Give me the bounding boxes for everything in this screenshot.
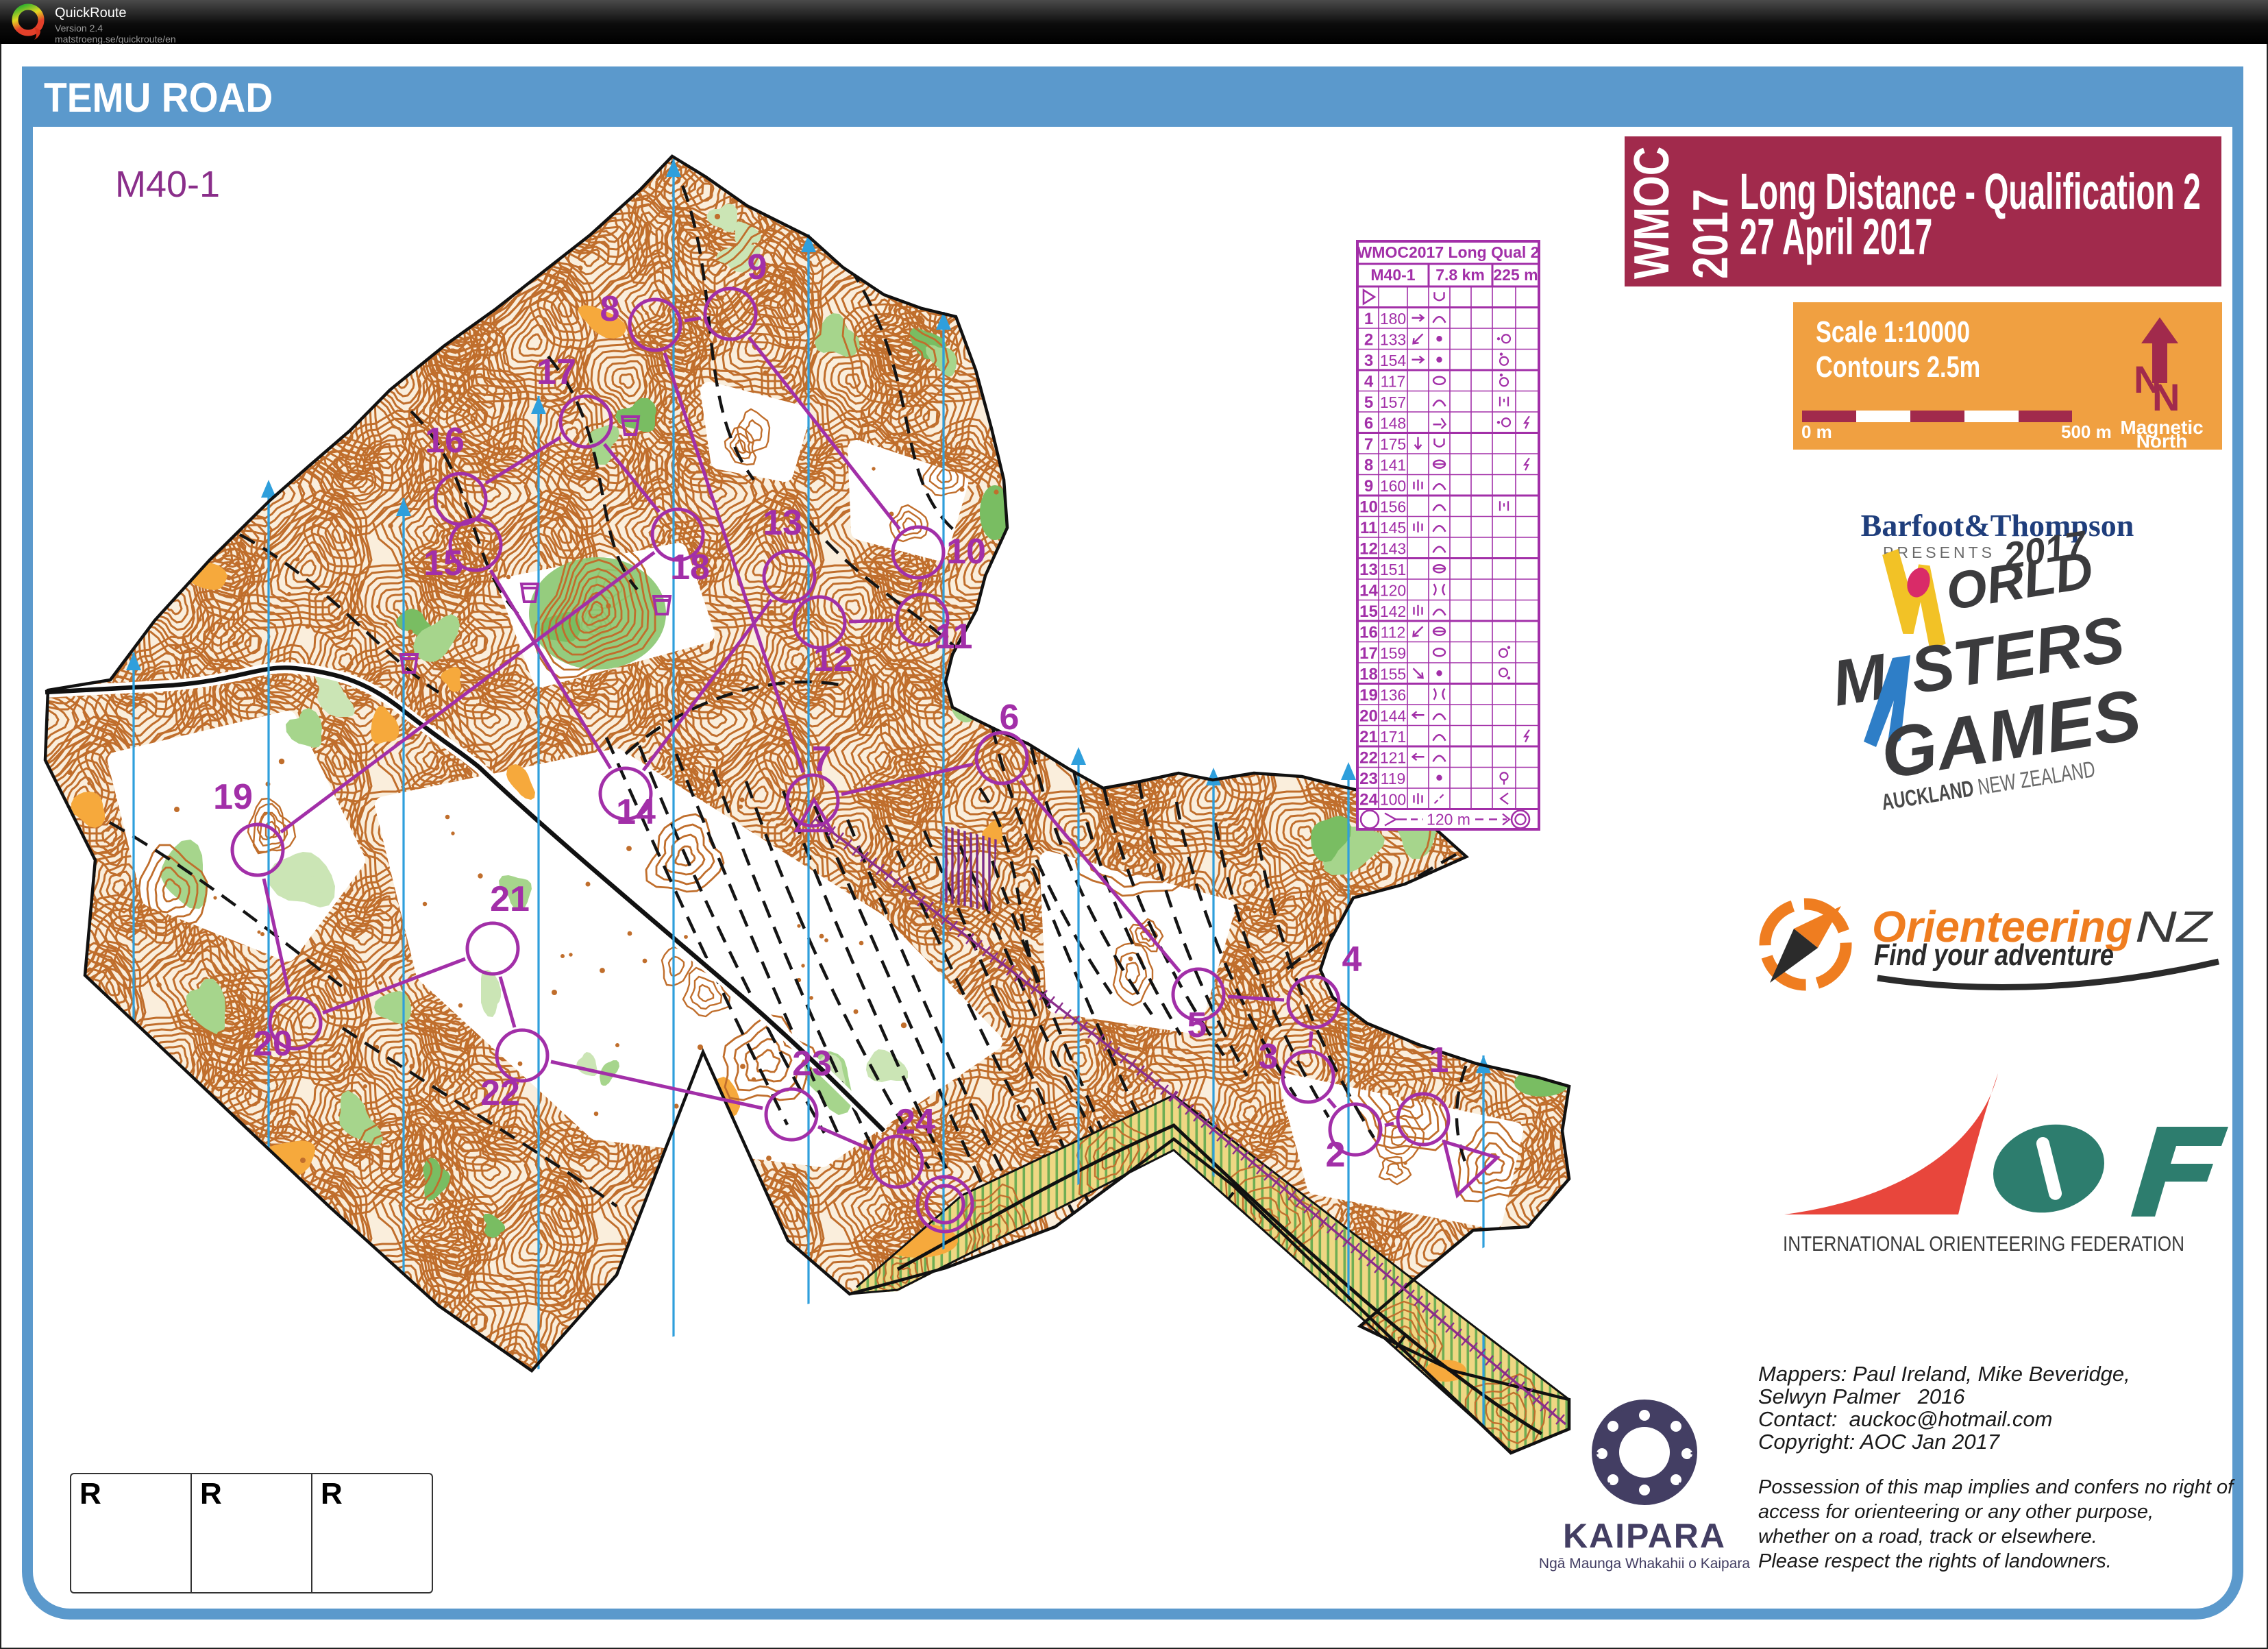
svg-text:Scale 1:10000: Scale 1:10000 [1816,315,1970,349]
svg-text:WMOC: WMOC [1625,147,1679,279]
svg-text:500 m: 500 m [2061,422,2112,442]
svg-text:NZ: NZ [2135,902,2214,951]
svg-text:Contours 2.5m: Contours 2.5m [1816,350,1980,384]
svg-text:Find your adventure: Find your adventure [1874,938,2114,972]
svg-text:27 April 2017: 27 April 2017 [1740,209,1932,266]
svg-text:North: North [2136,430,2188,450]
svg-text:Barfoot&Thompson: Barfoot&Thompson [1861,508,2134,543]
svg-text:Ngā Maunga Whakahii o Kaipara: Ngā Maunga Whakahii o Kaipara [1539,1556,1751,1572]
svg-text:KAIPARA: KAIPARA [1563,1517,1726,1555]
svg-text:INTERNATIONAL ORIENTEERING FED: INTERNATIONAL ORIENTEERING FEDERATION [1783,1232,2184,1256]
svg-text:2017: 2017 [1682,189,1738,279]
svg-text:0 m: 0 m [1801,422,1832,442]
svg-text:N: N [2152,376,2180,419]
